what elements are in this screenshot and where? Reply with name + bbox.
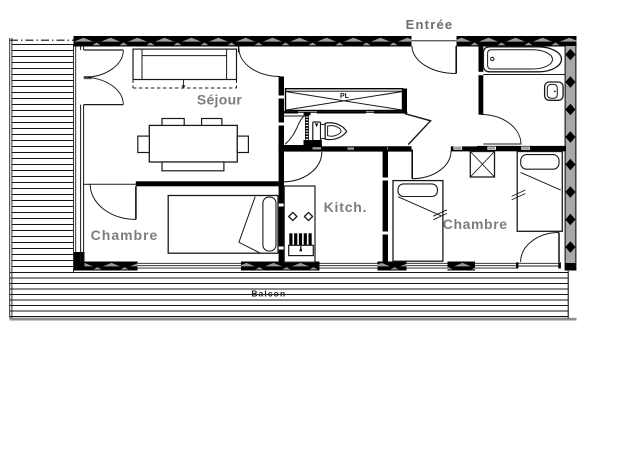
svg-text:Entrée: Entrée bbox=[406, 17, 454, 32]
svg-text:Chambre: Chambre bbox=[443, 216, 508, 232]
svg-text:Balcon: Balcon bbox=[251, 288, 286, 298]
svg-text:Chambre: Chambre bbox=[91, 227, 159, 243]
svg-text:PL: PL bbox=[340, 93, 350, 100]
svg-text:Kitch.: Kitch. bbox=[324, 199, 368, 215]
svg-text:Séjour: Séjour bbox=[197, 92, 243, 108]
